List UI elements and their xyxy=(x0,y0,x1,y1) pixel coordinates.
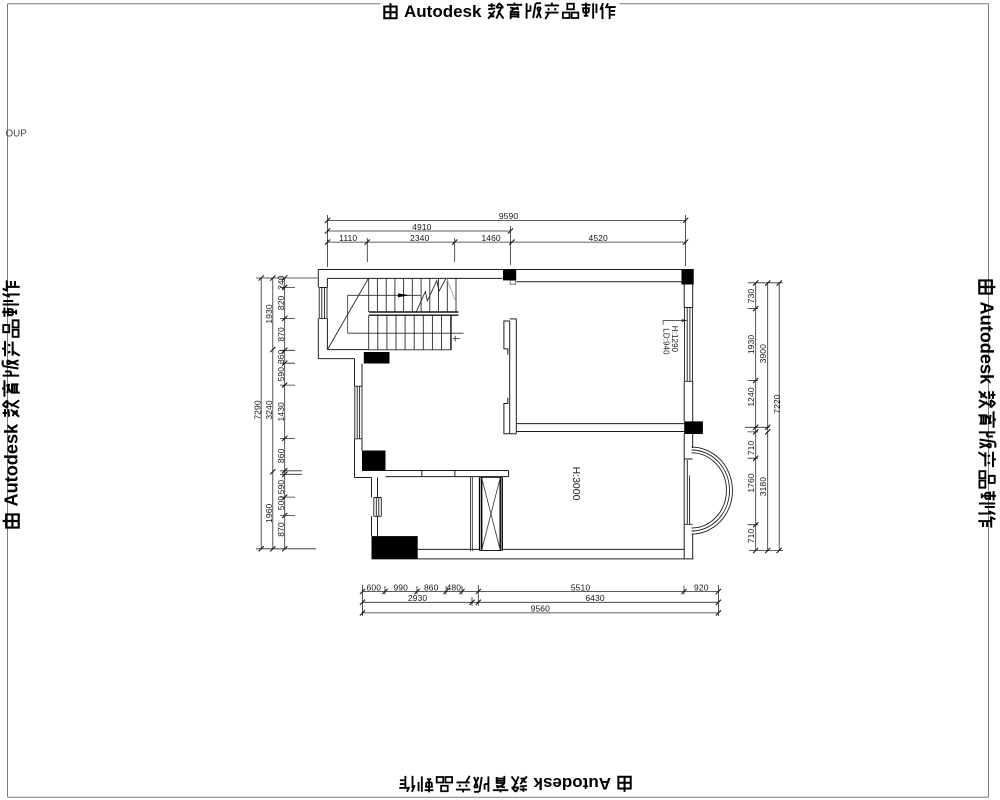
svg-text:3900: 3900 xyxy=(758,344,768,363)
svg-text:OUP: OUP xyxy=(6,129,28,140)
svg-text:4520: 4520 xyxy=(589,233,608,243)
svg-text:1460: 1460 xyxy=(481,233,500,243)
svg-text:3240: 3240 xyxy=(264,400,274,419)
svg-text:870: 870 xyxy=(276,522,286,537)
svg-text:820: 820 xyxy=(276,295,286,310)
svg-text:1110: 1110 xyxy=(339,233,357,243)
svg-text:2930: 2930 xyxy=(408,593,427,603)
svg-text:730: 730 xyxy=(746,289,756,304)
svg-text:3180: 3180 xyxy=(758,477,768,496)
svg-text:1430: 1430 xyxy=(276,402,286,421)
svg-text:590: 590 xyxy=(276,367,286,382)
svg-text:1930: 1930 xyxy=(264,304,274,323)
svg-text:4910: 4910 xyxy=(412,222,431,232)
svg-text:1930: 1930 xyxy=(746,335,756,354)
svg-text:360: 360 xyxy=(276,349,286,364)
svg-text:990: 990 xyxy=(393,582,408,592)
svg-text:710: 710 xyxy=(746,441,756,456)
svg-text:9590: 9590 xyxy=(499,211,518,221)
svg-text:LD:940: LD:940 xyxy=(661,328,670,355)
svg-text:480: 480 xyxy=(447,582,462,592)
svg-text:710: 710 xyxy=(746,529,756,544)
svg-text:9560: 9560 xyxy=(531,604,550,614)
svg-text:7290: 7290 xyxy=(252,400,262,419)
svg-text:870: 870 xyxy=(276,327,286,342)
svg-text:860: 860 xyxy=(276,448,286,463)
svg-text:H:3000: H:3000 xyxy=(570,467,582,501)
svg-text:240: 240 xyxy=(276,275,286,290)
svg-text:7220: 7220 xyxy=(772,394,782,413)
svg-text:1960: 1960 xyxy=(264,503,274,522)
svg-text:600: 600 xyxy=(367,582,382,592)
svg-text:1240: 1240 xyxy=(746,387,756,406)
svg-text:860: 860 xyxy=(424,582,439,592)
svg-text:920: 920 xyxy=(694,582,709,592)
svg-text:5510: 5510 xyxy=(571,582,590,592)
svg-text:6430: 6430 xyxy=(585,593,604,603)
svg-text:1760: 1760 xyxy=(746,473,756,492)
svg-text:500: 500 xyxy=(276,496,286,511)
svg-text:H:1290: H:1290 xyxy=(670,326,679,353)
svg-text:2340: 2340 xyxy=(410,233,429,243)
svg-text:590: 590 xyxy=(276,480,286,495)
